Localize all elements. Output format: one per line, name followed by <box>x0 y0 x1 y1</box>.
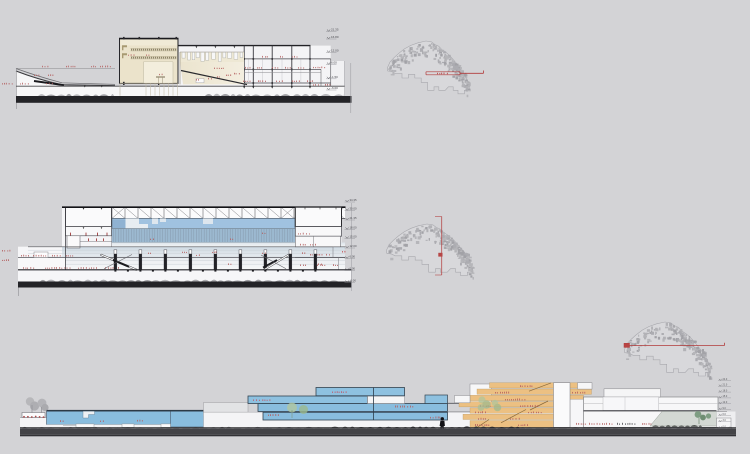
svg-text:21.35: 21.35 <box>350 216 357 220</box>
svg-text:6.00: 6.00 <box>350 255 356 259</box>
svg-text:15.00: 15.00 <box>350 235 357 239</box>
svg-text:34.35: 34.35 <box>350 198 357 202</box>
svg-text:18.00: 18.00 <box>350 226 357 230</box>
svg-text:-6.00: -6.00 <box>350 279 357 283</box>
svg-text:24.0: 24.0 <box>723 378 728 381</box>
svg-text:6.00: 6.00 <box>331 61 337 65</box>
svg-text:12.00: 12.00 <box>350 244 357 248</box>
svg-text:12.0: 12.0 <box>723 401 728 404</box>
svg-text:16.80: 16.80 <box>331 35 339 39</box>
svg-text:21.35: 21.35 <box>331 28 339 32</box>
svg-text:-6.00: -6.00 <box>331 86 338 90</box>
svg-text:18.0: 18.0 <box>723 389 728 392</box>
svg-text:12.00: 12.00 <box>331 49 339 53</box>
svg-text:30.00: 30.00 <box>350 207 357 211</box>
svg-text:-1.50: -1.50 <box>331 75 338 79</box>
svg-text:15.0: 15.0 <box>723 395 728 398</box>
svg-text:21.0: 21.0 <box>723 384 728 387</box>
svg-text:0.00: 0.00 <box>350 267 356 271</box>
